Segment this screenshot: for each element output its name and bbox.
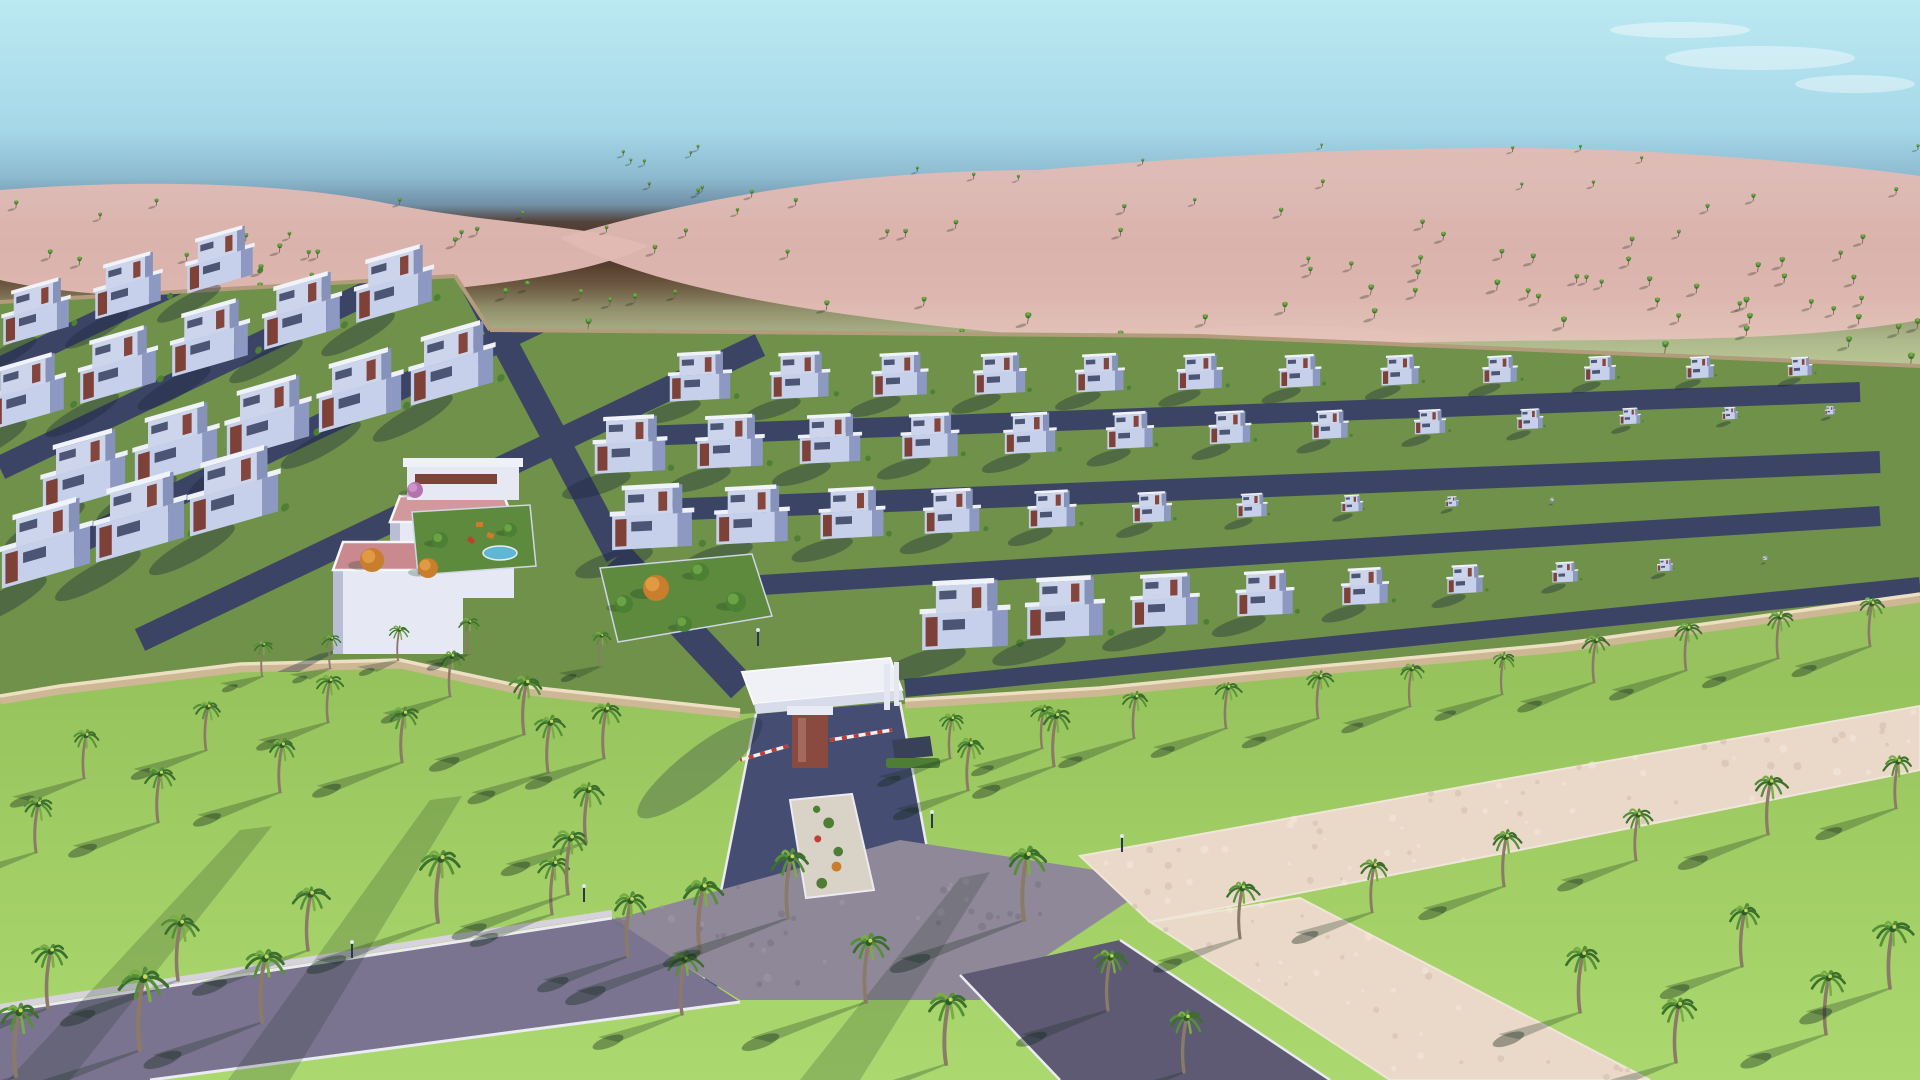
aerial-render: Aerial 3D architectural rendering of a g… xyxy=(0,0,1920,1080)
median-shrub xyxy=(816,878,827,889)
median-shrub xyxy=(833,847,843,857)
median-shrub xyxy=(832,862,842,872)
gate-column xyxy=(884,664,890,710)
median-shrub xyxy=(814,835,821,842)
gate-pillar-cap xyxy=(787,706,833,715)
median-shrub xyxy=(823,818,834,829)
playground-equipment xyxy=(476,522,483,527)
cloud xyxy=(1665,46,1855,70)
gate-pillar xyxy=(792,712,828,768)
clubhouse xyxy=(399,458,536,575)
cloud xyxy=(1610,22,1750,38)
scene-canvas xyxy=(0,0,1920,1080)
median-shrub xyxy=(813,806,820,813)
gate-column xyxy=(894,662,899,706)
cloud xyxy=(1795,75,1915,93)
swimming-pool xyxy=(483,546,517,560)
monument-sign xyxy=(892,736,933,760)
